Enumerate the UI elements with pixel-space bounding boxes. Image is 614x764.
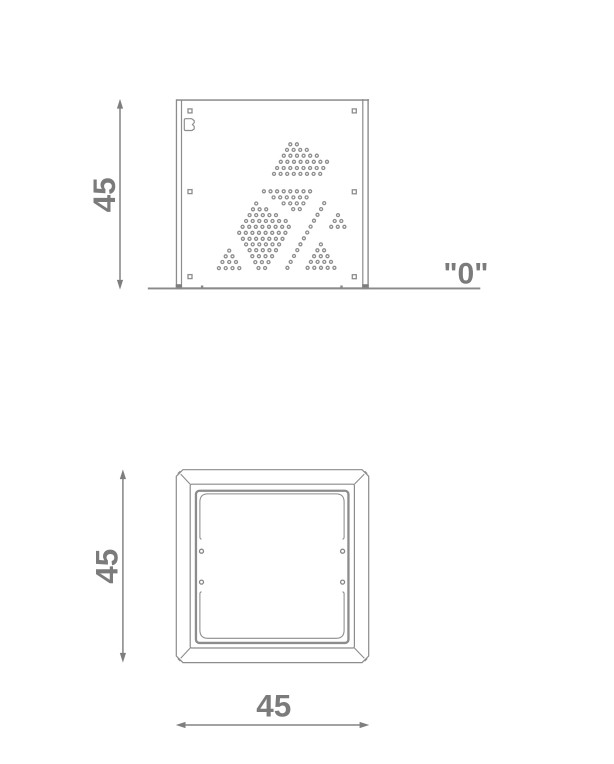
svg-text:45: 45 xyxy=(88,549,124,584)
svg-text:45: 45 xyxy=(86,177,122,212)
svg-text:45: 45 xyxy=(256,687,291,723)
svg-text:"0": "0" xyxy=(443,257,488,290)
